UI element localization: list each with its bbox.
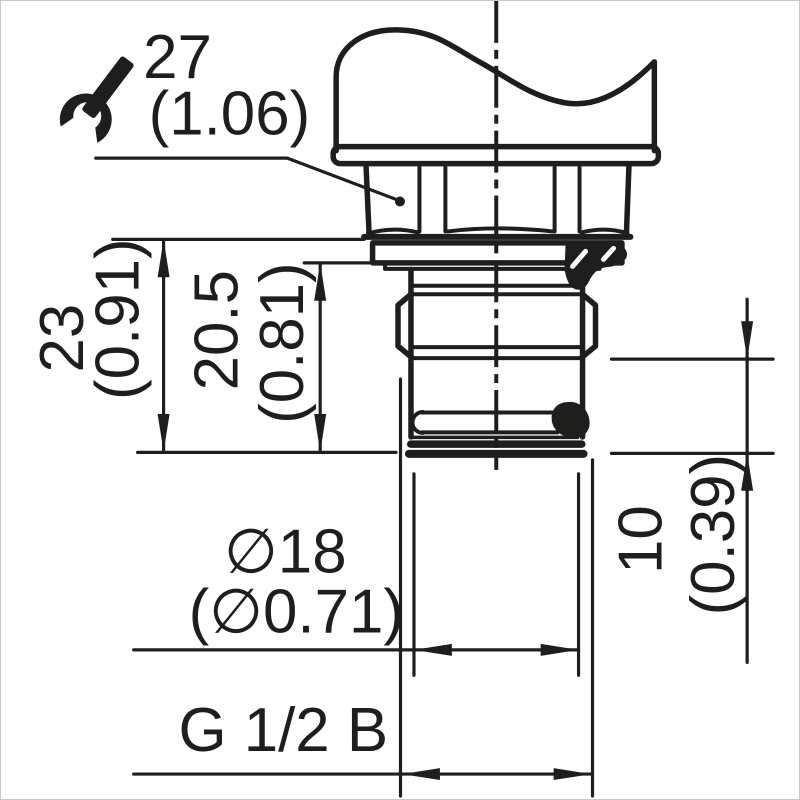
arrowhead-up [158, 239, 170, 277]
arrowhead-left [414, 644, 452, 656]
arrowhead-left [402, 768, 440, 780]
leader-dot [395, 197, 405, 207]
hex-left-edge [366, 167, 369, 234]
dim-10-inch: (0.39) [679, 454, 748, 616]
thread-designation: G 1/2 B [178, 696, 388, 765]
arrowhead-right [554, 768, 592, 780]
hex-right-edge [626, 167, 628, 234]
technical-drawing: 27 (1.06) 23 (0.91) 20.5 (0.81) 10 (0.39… [1, 1, 799, 799]
spigot-end-band [405, 450, 588, 458]
dim-10: 10 (0.39) [606, 299, 773, 662]
arrowhead-down [158, 414, 170, 452]
arrowhead-right [541, 644, 579, 656]
spigot-band [407, 440, 586, 447]
dim-20-5: 20.5 (0.81) [182, 262, 374, 451]
seal-ring [565, 244, 627, 289]
dim-wrench-size: 27 (1.06) [55, 23, 405, 207]
dim-10-value: 10 [606, 505, 675, 574]
wrench-size-inch: (1.06) [149, 80, 311, 149]
wrench-icon [55, 42, 139, 145]
dia-18-value: ∅18 [224, 518, 347, 587]
drawing-canvas: 27 (1.06) 23 (0.91) 20.5 (0.81) 10 (0.39… [0, 0, 800, 800]
groove-left-radius [412, 412, 422, 433]
arrowhead-down [741, 321, 753, 359]
dia-18-inch: (∅0.71) [189, 577, 404, 646]
dim-23-inch: (0.91) [84, 238, 153, 400]
dim-dia-18: ∅18 (∅0.71) [134, 474, 579, 675]
spigot-end [405, 437, 588, 457]
o-ring-groove [412, 402, 589, 438]
dim-20-5-inch: (0.81) [248, 262, 317, 424]
dim-20-5-value: 20.5 [182, 270, 251, 390]
